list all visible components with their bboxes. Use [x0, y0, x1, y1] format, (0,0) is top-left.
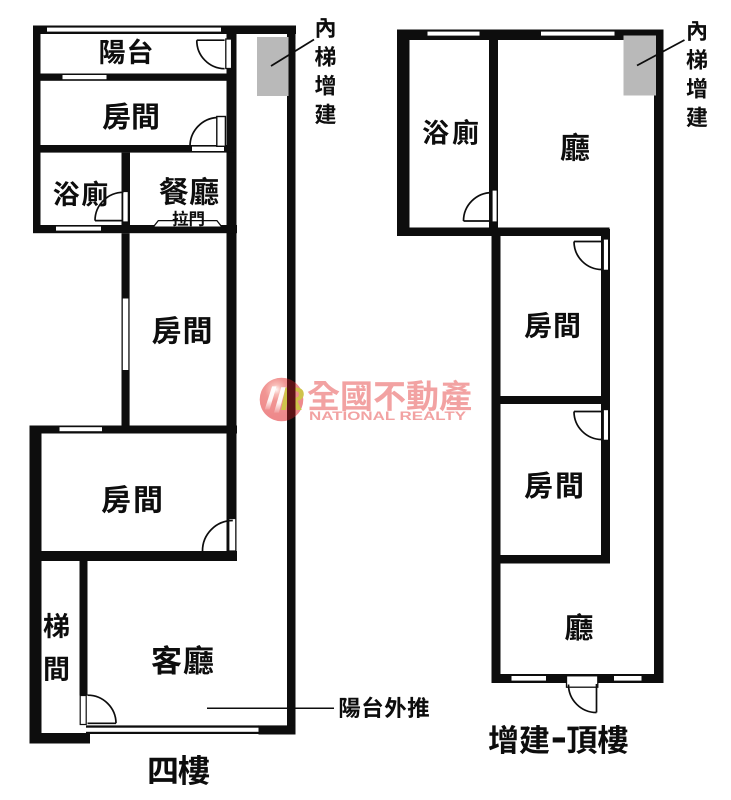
svg-text:NATIONAL REALTY: NATIONAL REALTY [309, 411, 466, 423]
